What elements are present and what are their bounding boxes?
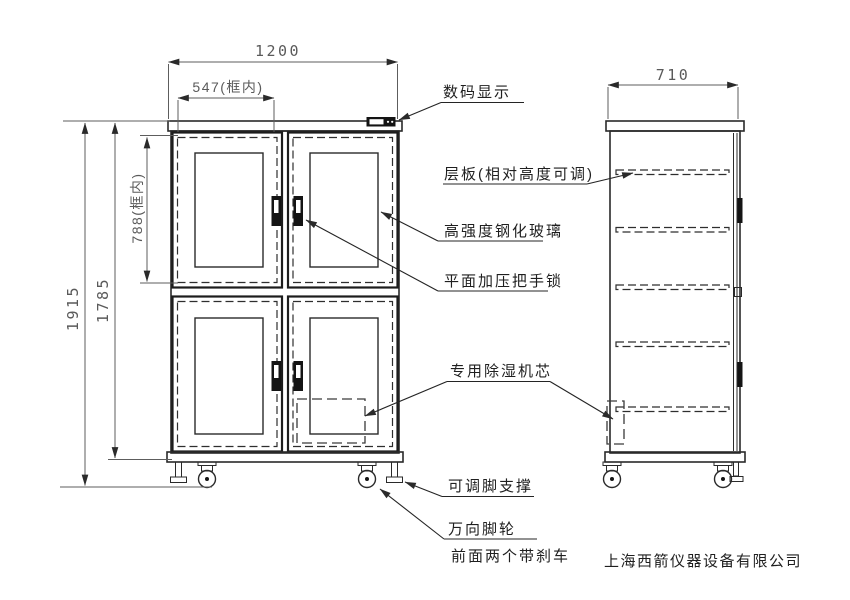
callout-text: 层板(相对高度可调) [444, 165, 594, 183]
side-view [603, 121, 745, 488]
callout-text: 高强度钢化玻璃 [444, 223, 563, 240]
technical-drawing: 1200 547(框内) 788(框内) 1785 1915 [0, 0, 850, 600]
shelf-line [616, 170, 729, 175]
shelf-line [616, 407, 729, 412]
door-lower-right [288, 297, 398, 452]
adjustable-foot-right [387, 462, 403, 483]
handle-lower-right [294, 361, 304, 391]
callout-text: 数码显示 [443, 84, 511, 101]
callout-text: 万向脚轮 [448, 521, 516, 538]
door-glass [310, 153, 378, 267]
drawing-page: 1200 547(框内) 788(框内) 1785 1915 [0, 0, 850, 600]
door-frame [173, 133, 283, 288]
foot-stem [176, 462, 182, 477]
leader-line [381, 212, 438, 241]
callouts: 数码显示 层板(相对高度可调) 高强度钢化玻璃 平面加压把手锁 专用除湿机芯 [306, 84, 633, 565]
handle-lower-left [272, 361, 282, 391]
caster-hub [721, 477, 725, 481]
shelf-line [616, 285, 729, 290]
shelves [616, 170, 729, 412]
digital-display [367, 117, 396, 127]
callout-caster: 万向脚轮 前面两个带刹车 [380, 489, 570, 565]
caster-front-right [358, 462, 376, 488]
callout-shelf: 层板(相对高度可调) [443, 165, 633, 184]
caster-side-right [714, 462, 743, 488]
leader-line [365, 382, 447, 417]
dim-depth: 710 [608, 66, 738, 119]
callout-text: 可调脚支撑 [448, 478, 533, 495]
shelf-line [616, 342, 729, 347]
callout-caster-note: 前面两个带刹车 [451, 548, 570, 565]
callout-text: 专用除湿机芯 [450, 363, 552, 380]
caster-side-left [603, 462, 621, 488]
foot-pad [387, 477, 403, 483]
callout-dehumidifier-core: 专用除湿机芯 [365, 363, 613, 419]
handle-upper-right [294, 196, 304, 226]
dehumidifier-box-front [297, 399, 365, 443]
door-frame [288, 133, 398, 288]
side-body [610, 131, 740, 453]
dim-text-overall-height: 1915 [64, 285, 82, 331]
door-seal-dashed [178, 138, 278, 283]
caster-hub [610, 477, 614, 481]
leader-line [380, 489, 444, 539]
foot-pad [171, 477, 187, 483]
door-glass [310, 318, 378, 434]
door-seal-dashed [178, 302, 278, 447]
dim-text-door-inner-width: 547(框内) [192, 79, 263, 95]
leader-line [405, 482, 442, 497]
callout-text: 平面加压把手锁 [444, 273, 563, 290]
caster-hub [205, 477, 209, 481]
caster-hub [365, 477, 369, 481]
door-glass [195, 318, 263, 434]
adjustable-foot-left [171, 462, 187, 483]
side-handle-lower [738, 362, 743, 387]
front-view [167, 117, 403, 488]
dim-text-cabinet-height: 1785 [94, 277, 112, 323]
handle-upper-left [272, 196, 282, 226]
side-top-panel [606, 121, 744, 131]
side-handle-upper [738, 198, 743, 223]
leader-line [550, 382, 613, 420]
display-button [391, 121, 393, 123]
door-frame [173, 297, 283, 452]
shelf-line [616, 228, 729, 233]
callout-tempered-glass: 高强度钢化玻璃 [381, 212, 563, 241]
display-screen [370, 119, 384, 124]
callout-digital-display: 数码显示 [399, 84, 524, 120]
handle-slot [274, 200, 279, 213]
door-lower-left [173, 297, 283, 452]
front-cabinet-body [171, 131, 399, 453]
handle-slot [296, 200, 301, 213]
handle-slot [274, 365, 279, 378]
caster-front-left [198, 462, 216, 488]
dim-door-inner-width: 547(框内) [178, 79, 274, 132]
leader-line [399, 103, 441, 121]
callout-adjustable-foot: 可调脚支撑 [405, 478, 534, 497]
door-glass [195, 153, 263, 267]
foot-stem [392, 462, 398, 477]
door-upper-right [288, 133, 398, 288]
handle-slot [296, 365, 301, 378]
dim-text-overall-width: 1200 [255, 42, 301, 60]
dim-text-depth: 710 [656, 66, 691, 84]
door-frame [288, 297, 398, 452]
dim-text-door-inner-height: 788(框内) [129, 172, 145, 243]
foot-stem [734, 462, 739, 476]
door-upper-left [173, 133, 283, 288]
display-button [387, 121, 389, 123]
company-name: 上海西箭仪器设备有限公司 [604, 552, 802, 570]
